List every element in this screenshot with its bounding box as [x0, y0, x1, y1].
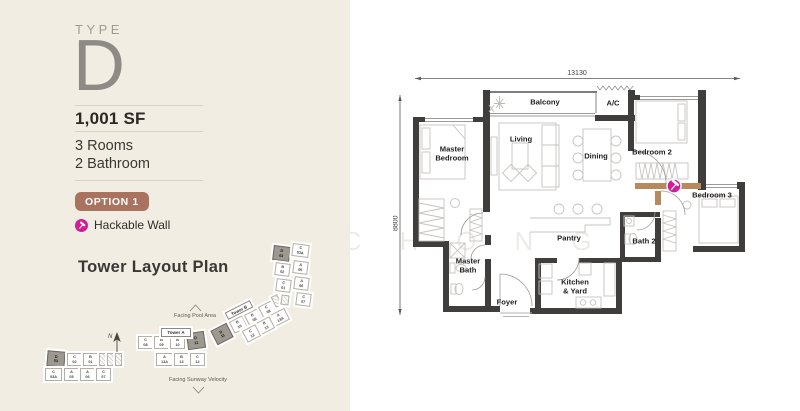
- unit-block-A05: A 05: [64, 368, 79, 381]
- room-label-foyer: Foyer: [497, 299, 518, 308]
- rooms-count: 3 Rooms: [75, 138, 133, 154]
- tower-a-label: Tower A: [161, 328, 191, 337]
- type-value: D: [73, 30, 125, 102]
- room-label-pantry: Pantry: [557, 235, 581, 244]
- unit-block-D03: D 03: [272, 245, 291, 262]
- room-label-living: Living: [510, 136, 532, 145]
- floor-plan-page: ANNIE CHONG TYPE D 1,001 SF 3 Rooms 2 Ba…: [0, 0, 800, 411]
- room-label-dining: Dining: [584, 153, 608, 162]
- dim-width-label: 13130: [567, 70, 587, 77]
- unit-block-B09: B 09: [154, 336, 169, 349]
- north-label: N: [108, 334, 113, 340]
- unit-block-D03: D 03: [46, 350, 65, 368]
- unit-block-C08: C 08: [138, 336, 153, 349]
- unit-block-C01: C 01: [275, 278, 291, 293]
- room-label-master-bath: Master Bath: [456, 257, 480, 274]
- room-label-master-bedroom: Master Bedroom: [435, 145, 468, 162]
- info-panel: TYPE D 1,001 SF 3 Rooms 2 Bathroom OPTIO…: [0, 0, 350, 411]
- room-label-bedroom-2: Bedroom 2: [632, 149, 672, 158]
- option-badge: OPTION 1: [75, 192, 149, 211]
- unit-block-C12: C 12: [190, 353, 205, 366]
- unit-block-B10: B 10: [170, 336, 185, 349]
- hackable-wall-icon: [667, 179, 681, 193]
- unit-block-C02: C 02: [67, 353, 82, 366]
- hackable-wall-legend: Hackable Wall: [75, 218, 170, 232]
- room-label-bath-2: Bath 2: [632, 238, 655, 247]
- divider: [75, 105, 203, 106]
- hammer-icon: [75, 219, 88, 232]
- unit-block-C03A: C 03A: [45, 368, 62, 381]
- room-label-kitchen-yard: Kitchen & Yard: [561, 278, 589, 295]
- unit-block-A13A: A 13A: [156, 353, 173, 366]
- unit-block-B02: B 02: [274, 262, 290, 277]
- north-arrow-icon: N: [108, 330, 124, 359]
- chevron-up-icon: [189, 304, 202, 312]
- unit-block-A06: A 06: [80, 368, 95, 381]
- unit-block-A06: A 06: [293, 276, 309, 291]
- legend-label: Hackable Wall: [94, 218, 170, 232]
- floor-plan: 13130 8800: [393, 63, 755, 328]
- unit-block-C07: C 07: [295, 292, 311, 307]
- room-label-ac: A/C: [606, 100, 619, 109]
- chevron-down-icon: [192, 386, 205, 394]
- unit-block-B13: B 13: [174, 353, 189, 366]
- elevator-core: [99, 353, 106, 366]
- elevator-core: [280, 295, 289, 306]
- facing-sunway-label: Facing Sunway Velocity: [169, 377, 227, 383]
- unit-block-A05: A 05: [292, 260, 308, 275]
- facing-pool-label: Facing Pool Area: [174, 313, 216, 319]
- room-label-balcony: Balcony: [530, 99, 560, 108]
- tower-layout-map: C 08B 09B 10D 11D 03C 02B 01A 13AB 13C 1…: [10, 240, 350, 410]
- unit-block-C03A: C 03A: [291, 243, 309, 258]
- divider: [75, 131, 203, 132]
- divider: [75, 180, 203, 181]
- room-label-bedroom-3: Bedroom 3: [692, 192, 732, 201]
- bathrooms-count: 2 Bathroom: [75, 156, 150, 172]
- unit-block-B01: B 01: [83, 353, 98, 366]
- unit-block-C07: C 07: [96, 368, 111, 381]
- dim-height-label: 8800: [393, 215, 400, 231]
- unit-area: 1,001 SF: [75, 109, 146, 129]
